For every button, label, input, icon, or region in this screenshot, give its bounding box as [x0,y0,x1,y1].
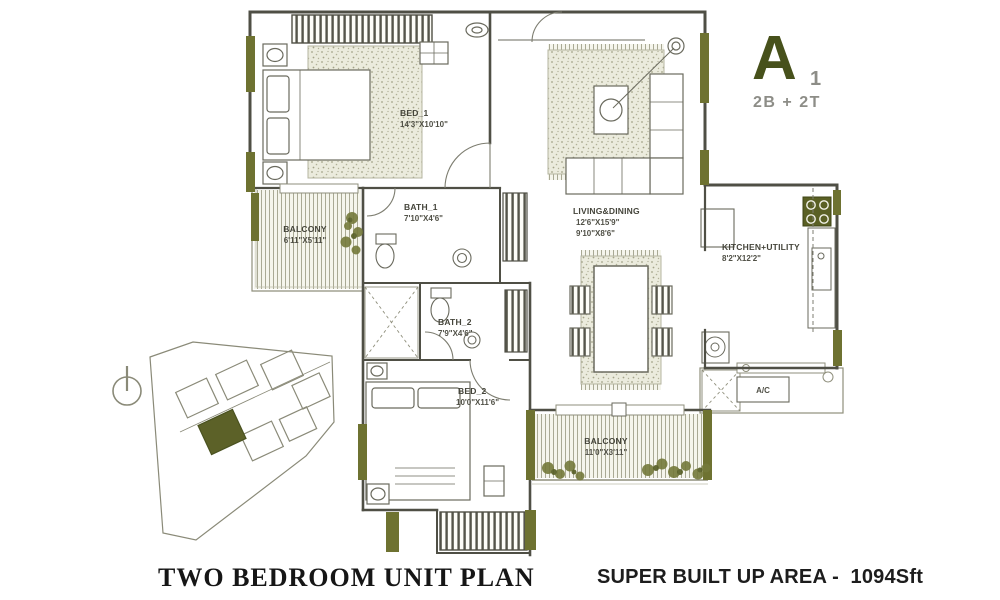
kitchen-label: KITCHEN+UTILITY [722,242,800,252]
sofa-right [650,74,683,158]
bath1-label: BATH_1 [404,202,438,212]
bath2-label: BATH_2 [438,317,472,327]
living-dims: 12'6"X15'9" [576,218,620,227]
bed2-label: BED_2 [458,386,486,396]
site-boundary [150,342,334,540]
bath1-dims: 7'10"X4'6" [404,214,443,223]
bed1-balcony-slider [280,184,358,193]
unit-configuration: 2B + 2T [753,94,821,112]
bath1-closet [503,193,527,261]
dining-table [594,266,648,372]
bath1-fixtures [376,193,527,268]
unit-badge: A 1 2B + 2T [748,28,908,118]
area-label: SUPER BUILT UP AREA - 1094Sft [597,566,923,589]
key-plan-buildings [176,350,330,461]
bed1-wardrobe [292,15,432,43]
ceiling-fan-icon [466,23,488,37]
dining-chair [570,286,590,314]
shaft-box [365,287,418,358]
sofa-bottom [566,158,650,194]
balcony1-dims: 6'11"X5'11" [284,236,327,245]
north-arrow-icon [113,366,141,405]
ac-label: A/C [756,386,770,395]
unit-number: 1 [810,68,821,91]
kitchen-sink [812,248,831,290]
bath2-dims: 7'9"X4'6" [438,329,473,338]
balcony1-label: BALCONY [283,224,327,234]
kitchen-dims: 8'2"X12'2" [722,254,761,263]
balcony2-label: BALCONY [584,436,628,446]
light-point-icon [668,38,684,54]
living-label: LIVING&DINING [573,206,640,216]
key-plan [150,342,334,540]
highlighted-building [198,409,246,454]
sofa-corner [650,158,683,194]
floor-plan-page: BED_1 14'3"X10'10" BATH_1 7'10"X4'6" BAL… [0,0,1000,600]
toilet-icon [376,244,394,268]
center-table [594,86,628,134]
block-letter: A [752,28,797,90]
bed2-wardrobe [440,512,527,550]
bath2-closet [505,290,527,352]
bed1-dims: 14'3"X10'10" [400,120,448,129]
dining-chair [652,328,672,356]
dining-dims: 9'10"X8'6" [576,229,615,238]
balcony2-dims: 11'0"X3'11" [585,448,628,457]
bed1-label: BED_1 [400,108,428,118]
bed2-dims: 10'0"X11'6" [456,398,499,407]
dining-chair [570,328,590,356]
dining-chair [652,286,672,314]
plan-title: TWO BEDROOM UNIT PLAN [158,563,535,593]
kitchen-fixtures [701,188,835,363]
ac-ledge [700,363,843,413]
